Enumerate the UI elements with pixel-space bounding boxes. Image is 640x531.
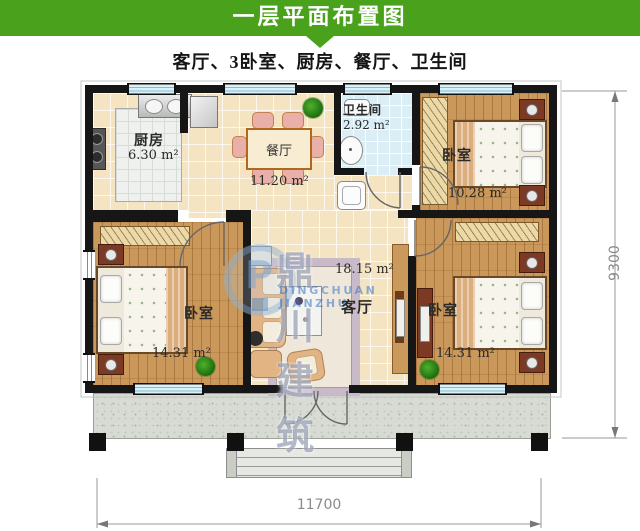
window — [438, 383, 507, 395]
porch-column — [396, 433, 413, 451]
washing-machine — [337, 181, 366, 210]
nightstand — [519, 352, 545, 373]
wall-left — [85, 85, 93, 393]
window — [127, 83, 176, 95]
porch-column — [89, 433, 106, 451]
toilet — [339, 136, 363, 165]
wall-bath-bottom-a — [334, 168, 364, 175]
nightstand — [98, 354, 124, 375]
bedroom-br-area: 14.31 m² — [436, 346, 495, 361]
dresser-tv — [417, 288, 433, 358]
window — [223, 83, 297, 95]
wardrobe — [100, 226, 190, 246]
title-banner: 一层平面布置图 — [0, 0, 640, 36]
bedroom-br-label: 卧室 — [428, 300, 458, 320]
porch-column — [531, 433, 548, 451]
bedroom-bl-label: 卧室 — [184, 303, 214, 323]
bedroom-bl-area: 14.31 m² — [152, 346, 211, 361]
nightstand — [519, 185, 545, 206]
plant — [420, 360, 439, 379]
bathroom-area: 2.92 m² — [343, 118, 390, 132]
wall-kitchen-bottom — [85, 210, 178, 222]
dining-area: 11.20 m² — [250, 174, 309, 189]
coffee-table — [286, 286, 322, 336]
page-subtitle: 客厅、3卧室、厨房、餐厅、卫生间 — [0, 48, 640, 74]
wall-living-right — [408, 256, 416, 385]
page-title: 一层平面布置图 — [0, 0, 640, 36]
plant — [303, 98, 323, 118]
wall-bath-left — [334, 93, 341, 175]
nightstand — [519, 99, 545, 120]
bedroom-tr-area: 10.28 m² — [448, 186, 507, 201]
wall-right — [549, 85, 557, 393]
dining-chair — [282, 112, 304, 129]
wall-mid-vert-a — [412, 93, 420, 165]
dimension-width: 11700 — [0, 497, 638, 513]
fridge — [190, 96, 218, 128]
window — [83, 353, 95, 383]
wall-bedroom-tr-bottom — [398, 210, 549, 218]
window — [438, 83, 514, 95]
wardrobe — [455, 222, 539, 242]
dining-chair — [252, 112, 274, 129]
dining-chair — [232, 136, 247, 158]
porch-slab — [93, 393, 551, 439]
nightstand — [98, 244, 124, 265]
tv-cabinet — [392, 244, 409, 374]
dining-table: 餐厅 — [246, 128, 312, 170]
floor-plan-page: 一层平面布置图 客厅、3卧室、厨房、餐厅、卫生间 餐厅 — [0, 0, 640, 531]
entry-steps — [233, 448, 405, 478]
bed-bottom-left — [96, 266, 188, 354]
bed-bottom-right — [453, 276, 547, 350]
wall-kitchen-right — [180, 93, 188, 133]
window — [133, 383, 204, 395]
kitchen-area: 6.30 m² — [128, 148, 179, 163]
ottoman — [250, 350, 282, 378]
living-label: 客厅 — [341, 296, 373, 317]
wall-bath-bottom-b — [398, 168, 412, 175]
step-side-right — [401, 448, 412, 478]
dining-room-label: 餐厅 — [266, 140, 292, 159]
side-table — [250, 246, 272, 266]
nightstand — [519, 252, 545, 273]
bedroom-tr-label: 卧室 — [442, 145, 472, 165]
armchair — [286, 347, 327, 384]
banner-pointer — [306, 36, 334, 48]
living-area: 18.15 m² — [335, 262, 394, 277]
window — [343, 83, 392, 95]
porch-column — [227, 433, 244, 451]
bathroom-label: 卫生间 — [343, 101, 382, 118]
dimension-depth: 9300 — [607, 233, 623, 293]
step-side-left — [226, 448, 237, 478]
kitchen-label: 厨房 — [134, 130, 164, 150]
wall-living-left — [243, 210, 251, 385]
window — [83, 250, 95, 280]
